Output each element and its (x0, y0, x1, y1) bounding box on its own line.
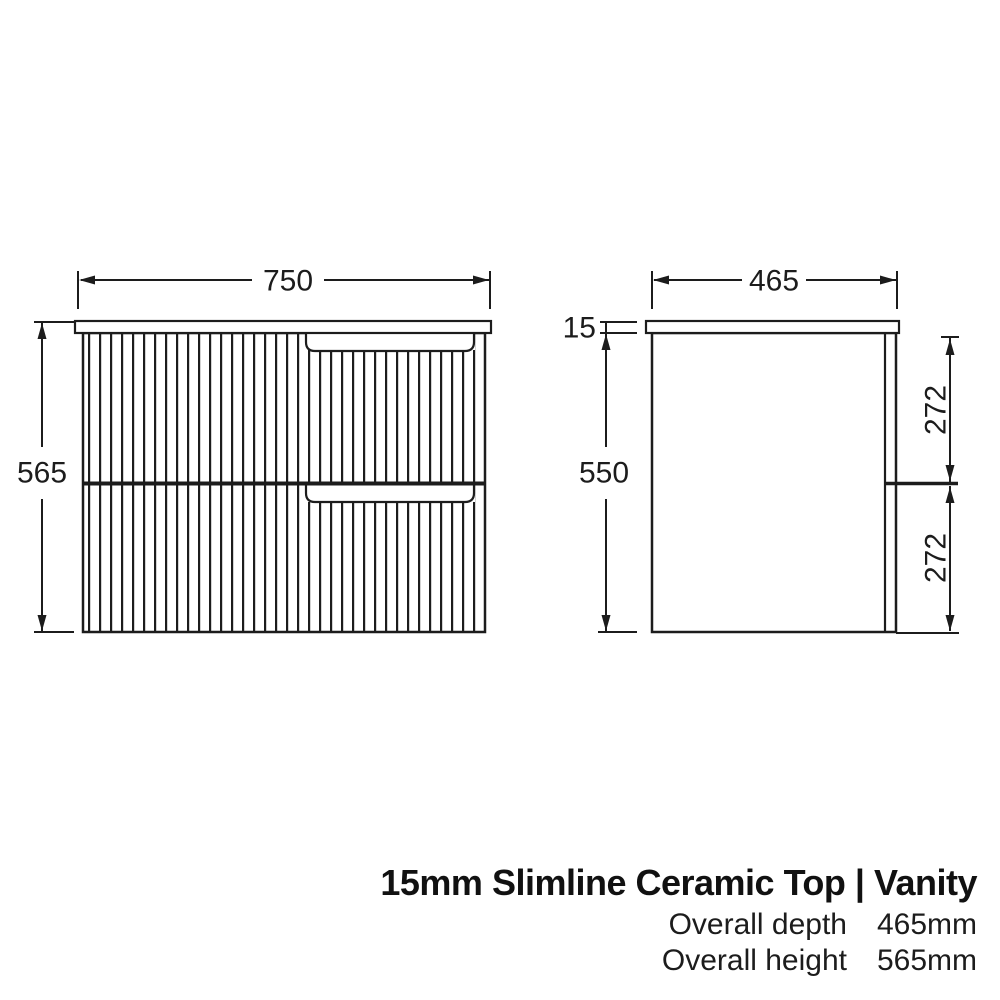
technical-drawing: 750 565 (0, 0, 1000, 1000)
product-title: 15mm Slimline Ceramic Top | Vanity (380, 863, 977, 903)
bottom-drawer-label: 272 (920, 533, 953, 583)
top-drawer-label: 272 (920, 385, 953, 435)
arrow-up-icon (38, 323, 47, 339)
front-ceramic-top (75, 321, 491, 333)
arrow-left-icon (79, 276, 95, 285)
front-view (75, 321, 491, 632)
spec-value-height: 565mm (865, 943, 977, 979)
spec-row-depth: Overall depth 465mm (380, 907, 977, 943)
arrow-up-icon (602, 334, 611, 350)
side-depth-label: 465 (749, 265, 799, 298)
top-thickness-label: 15 (563, 312, 596, 345)
bottom-drawer-handle-recess (305, 484, 475, 502)
spec-row-height: Overall height 565mm (380, 943, 977, 979)
arrow-up-icon (946, 339, 955, 355)
arrow-down-icon (946, 465, 955, 481)
arrow-down-icon (602, 615, 611, 631)
arrow-up-icon (946, 487, 955, 503)
spec-value-depth: 465mm (865, 907, 977, 943)
top-drawer-handle-recess (305, 332, 475, 350)
arrow-right-icon (880, 276, 896, 285)
diagram-canvas: 750 565 (0, 0, 1000, 1000)
arrow-left-icon (653, 276, 669, 285)
cabinet-height-label: 550 (579, 457, 629, 490)
title-block: 15mm Slimline Ceramic Top | Vanity Overa… (380, 863, 977, 979)
arrow-right-icon (473, 276, 489, 285)
front-width-label: 750 (263, 265, 313, 298)
arrow-down-icon (946, 615, 955, 631)
arrow-down-icon (38, 615, 47, 631)
spec-label-height: Overall height (662, 943, 847, 979)
side-view (646, 321, 958, 632)
side-ceramic-top (646, 321, 899, 333)
side-cabinet-body (652, 333, 896, 632)
spec-table: Overall depth 465mm Overall height 565mm (380, 907, 977, 979)
front-height-label: 565 (17, 457, 67, 490)
spec-label-depth: Overall depth (669, 907, 847, 943)
